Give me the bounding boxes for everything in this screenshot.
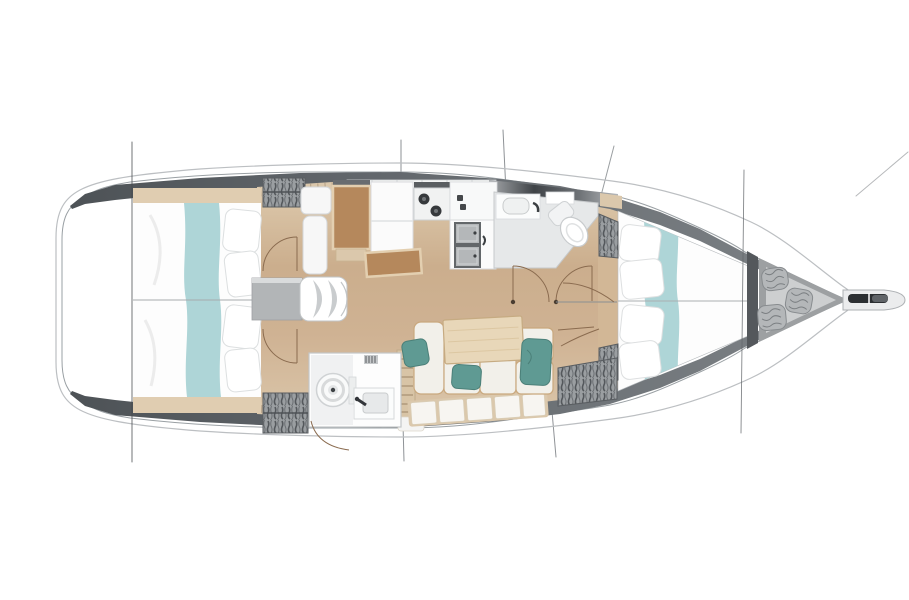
companionway (252, 277, 347, 321)
wardrobe-fwd-top (599, 214, 618, 258)
galley-island (365, 249, 422, 277)
boat-floor-plan (0, 0, 909, 600)
floor-plan-canvas (0, 0, 909, 600)
companionway-steps (300, 277, 347, 321)
companionway-highlight (252, 278, 302, 283)
stove (414, 188, 450, 220)
shower-fitting (317, 374, 357, 407)
nav-seat (303, 216, 327, 274)
aft-bed-head-shelf-top (133, 188, 261, 204)
forward-head (309, 353, 401, 450)
head-sink (354, 388, 394, 419)
vanity-basin (503, 198, 529, 214)
head-shelf (546, 192, 574, 204)
fridge-counter (371, 182, 413, 257)
aft-bed-head-shelf-bottom (133, 396, 261, 413)
companionway-base (252, 278, 302, 320)
anchor-locker (757, 258, 847, 342)
counter-right (450, 182, 497, 220)
bowsprit (843, 290, 905, 310)
nav-seat-back (301, 187, 331, 214)
galley-sinks (455, 223, 485, 267)
nav-desk-shelf (336, 249, 366, 261)
saloon (397, 316, 553, 431)
saloon-table (443, 316, 524, 364)
forward-bulkhead (747, 251, 758, 349)
stove-vent (414, 182, 450, 188)
roller-segment (872, 295, 888, 302)
hinge-dot (511, 300, 515, 304)
nav-desk (333, 186, 370, 249)
forestay-line (856, 152, 908, 196)
